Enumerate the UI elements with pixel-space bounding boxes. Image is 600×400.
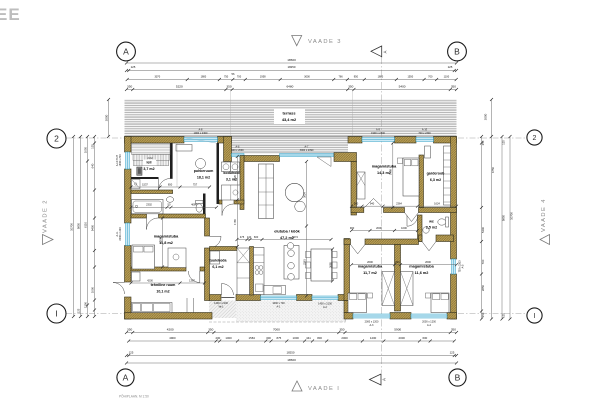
svg-text:2,5 m2: 2,5 m2 <box>426 226 437 230</box>
svg-text:I: I <box>55 309 57 319</box>
svg-text:puhkeruum: puhkeruum <box>194 169 214 173</box>
svg-text:350: 350 <box>348 84 353 88</box>
svg-text:2361: 2361 <box>302 259 306 265</box>
svg-text:1900 x 2300: 1900 x 2300 <box>194 132 208 135</box>
svg-text:1900 x 700: 1900 x 700 <box>119 154 122 167</box>
svg-text:5400: 5400 <box>399 84 406 88</box>
svg-text:2000: 2000 <box>104 114 108 121</box>
svg-text:1100: 1100 <box>83 302 87 308</box>
svg-text:A-11: A-11 <box>116 231 119 237</box>
svg-text:125: 125 <box>131 65 136 69</box>
svg-text:125: 125 <box>448 65 453 69</box>
svg-text:2132: 2132 <box>147 157 153 160</box>
svg-text:18500: 18500 <box>287 58 296 62</box>
svg-text:4900: 4900 <box>169 336 176 340</box>
svg-text:700: 700 <box>428 74 433 78</box>
svg-text:2: 2 <box>54 134 59 144</box>
svg-text:A-1: A-1 <box>277 305 282 308</box>
svg-text:125: 125 <box>502 313 506 318</box>
svg-text:6,1 m2: 6,1 m2 <box>212 265 223 269</box>
svg-text:6,3 m2: 6,3 m2 <box>430 178 441 182</box>
svg-text:elutuba / köök: elutuba / köök <box>274 230 300 234</box>
svg-text:1800: 1800 <box>201 74 207 78</box>
svg-text:terrass: terrass <box>283 111 296 116</box>
svg-text:I: I <box>534 313 536 320</box>
svg-text:magamistuba: magamistuba <box>154 235 179 239</box>
svg-text:6750: 6750 <box>491 166 495 173</box>
svg-text:1798: 1798 <box>389 169 393 175</box>
svg-text:766: 766 <box>338 74 343 78</box>
svg-text:2600: 2600 <box>425 260 431 264</box>
svg-text:2000 x 1200: 2000 x 1200 <box>119 227 122 241</box>
svg-text:3370: 3370 <box>154 74 160 78</box>
svg-text:10,1 m2: 10,1 m2 <box>156 290 169 294</box>
svg-text:875: 875 <box>277 336 282 340</box>
svg-text:wc: wc <box>428 220 434 224</box>
svg-text:A: A <box>123 47 129 57</box>
svg-text:A-10 PUIT: A-10 PUIT <box>116 154 119 166</box>
svg-text:1000: 1000 <box>90 286 94 293</box>
svg-text:700: 700 <box>481 259 485 264</box>
svg-text:B: B <box>455 373 461 383</box>
svg-text:1765: 1765 <box>233 219 237 225</box>
svg-text:757: 757 <box>193 182 198 186</box>
svg-text:2302: 2302 <box>158 237 162 243</box>
svg-text:18250: 18250 <box>286 350 294 354</box>
svg-text:140: 140 <box>247 235 252 239</box>
svg-text:leil: leil <box>147 161 152 165</box>
svg-text:magamistuba: magamistuba <box>358 265 383 269</box>
svg-text:1624: 1624 <box>434 202 440 206</box>
svg-text:tehniline ruum: tehniline ruum <box>151 283 176 287</box>
svg-text:1000: 1000 <box>293 336 300 340</box>
svg-text:5900: 5900 <box>394 327 401 331</box>
svg-text:PÕHIPLAAN. M 1:50: PÕHIPLAAN. M 1:50 <box>119 394 149 399</box>
svg-text:Va-1: Va-1 <box>218 305 224 308</box>
svg-text:2302: 2302 <box>146 203 152 207</box>
svg-text:A-3: A-3 <box>370 324 375 327</box>
svg-text:2600: 2600 <box>367 260 373 264</box>
svg-text:magamistuba: magamistuba <box>409 265 434 269</box>
svg-text:950: 950 <box>354 74 359 78</box>
svg-text:300: 300 <box>266 336 271 340</box>
svg-text:6480: 6480 <box>286 84 293 88</box>
svg-text:1100: 1100 <box>444 74 450 78</box>
svg-text:800: 800 <box>317 336 322 340</box>
svg-text:11,6 m2: 11,6 m2 <box>415 271 429 275</box>
svg-text:125: 125 <box>76 308 80 313</box>
svg-text:tuulekoda: tuulekoda <box>210 259 228 263</box>
svg-text:1000: 1000 <box>401 226 407 230</box>
svg-text:200: 200 <box>216 336 221 340</box>
svg-text:7000: 7000 <box>273 327 280 331</box>
svg-text:125: 125 <box>502 140 506 145</box>
svg-text:900: 900 <box>350 226 355 230</box>
svg-text:B: B <box>454 47 460 57</box>
svg-text:A: A <box>383 50 388 53</box>
svg-text:1000: 1000 <box>225 336 232 340</box>
svg-text:18250: 18250 <box>287 65 295 69</box>
svg-text:940 x 2090: 940 x 2090 <box>231 149 244 152</box>
svg-text:VAADE I: VAADE I <box>308 386 340 392</box>
svg-text:2000: 2000 <box>376 226 382 230</box>
svg-text:4084: 4084 <box>191 203 197 207</box>
svg-text:1800: 1800 <box>378 74 384 78</box>
svg-text:1900 x 2300: 1900 x 2300 <box>371 132 385 135</box>
svg-text:125: 125 <box>129 350 134 354</box>
svg-text:1387: 1387 <box>189 279 195 283</box>
svg-text:A-4: A-4 <box>427 324 432 327</box>
svg-text:700 x 2300: 700 x 2300 <box>418 132 431 135</box>
svg-text:350: 350 <box>127 84 132 88</box>
svg-text:350: 350 <box>208 327 213 331</box>
svg-text:2026: 2026 <box>233 175 237 181</box>
svg-text:10700: 10700 <box>69 223 73 231</box>
svg-text:350: 350 <box>481 312 485 317</box>
svg-text:3024: 3024 <box>302 192 306 198</box>
svg-text:2000: 2000 <box>399 336 406 340</box>
svg-text:43,4 m2: 43,4 m2 <box>282 117 297 122</box>
svg-text:A: A <box>382 378 387 381</box>
svg-text:3,7 m2: 3,7 m2 <box>143 167 154 171</box>
svg-text:600: 600 <box>423 336 428 340</box>
svg-text:2000: 2000 <box>484 113 488 120</box>
svg-text:2364: 2364 <box>396 202 402 206</box>
svg-text:VAADE 2: VAADE 2 <box>43 199 49 233</box>
svg-text:441: 441 <box>306 336 311 340</box>
svg-text:56: 56 <box>232 72 235 76</box>
svg-text:3000 x 2090: 3000 x 2090 <box>300 149 314 152</box>
svg-text:A: A <box>123 373 129 383</box>
svg-text:350: 350 <box>339 327 344 331</box>
svg-text:5400: 5400 <box>481 226 485 233</box>
svg-text:940: 940 <box>370 202 375 206</box>
svg-text:4200: 4200 <box>167 327 174 331</box>
svg-text:350: 350 <box>451 327 456 331</box>
svg-text:3085: 3085 <box>328 262 332 268</box>
svg-text:magamistuba: magamistuba <box>372 165 397 169</box>
svg-text:A-2: A-2 <box>323 306 328 309</box>
svg-text:9850: 9850 <box>76 222 80 229</box>
svg-text:EE: EE <box>0 5 21 24</box>
svg-text:4200: 4200 <box>147 279 153 283</box>
svg-text:125: 125 <box>450 350 455 354</box>
svg-text:10700: 10700 <box>510 212 514 220</box>
svg-text:6474: 6474 <box>292 235 298 239</box>
svg-text:750: 750 <box>224 74 229 78</box>
svg-text:600: 600 <box>395 260 400 264</box>
svg-text:125: 125 <box>90 144 94 149</box>
svg-text:700: 700 <box>237 74 242 78</box>
svg-text:2000: 2000 <box>341 336 348 340</box>
svg-text:3000: 3000 <box>304 74 310 78</box>
svg-text:475: 475 <box>240 235 245 239</box>
svg-text:350: 350 <box>481 140 485 145</box>
svg-text:1050: 1050 <box>83 146 87 153</box>
svg-text:11,7 m2: 11,7 m2 <box>363 271 377 275</box>
svg-text:18500: 18500 <box>287 358 296 362</box>
svg-text:350: 350 <box>226 84 231 88</box>
svg-text:6110: 6110 <box>83 222 87 228</box>
svg-text:garderoob: garderoob <box>427 172 446 176</box>
svg-text:1537: 1537 <box>142 182 148 186</box>
svg-text:350: 350 <box>127 327 132 331</box>
svg-text:2: 2 <box>533 135 537 142</box>
svg-text:2850: 2850 <box>481 284 485 291</box>
svg-text:600: 600 <box>254 235 259 239</box>
svg-text:1584: 1584 <box>249 336 256 340</box>
svg-text:VAADE 4: VAADE 4 <box>541 198 547 232</box>
svg-text:9400: 9400 <box>90 224 94 231</box>
svg-text:18,1 m2: 18,1 m2 <box>197 176 210 180</box>
svg-text:1958: 1958 <box>260 74 266 78</box>
svg-text:500: 500 <box>354 202 359 206</box>
svg-text:A-5: A-5 <box>462 264 465 268</box>
svg-text:VAADE 3: VAADE 3 <box>308 39 342 45</box>
svg-text:9850: 9850 <box>502 214 506 221</box>
svg-text:5220: 5220 <box>176 84 183 88</box>
svg-text:640: 640 <box>90 163 94 168</box>
svg-text:650: 650 <box>168 182 173 186</box>
svg-text:1200: 1200 <box>370 336 377 340</box>
svg-text:350: 350 <box>451 84 456 88</box>
svg-text:1550: 1550 <box>407 74 413 78</box>
